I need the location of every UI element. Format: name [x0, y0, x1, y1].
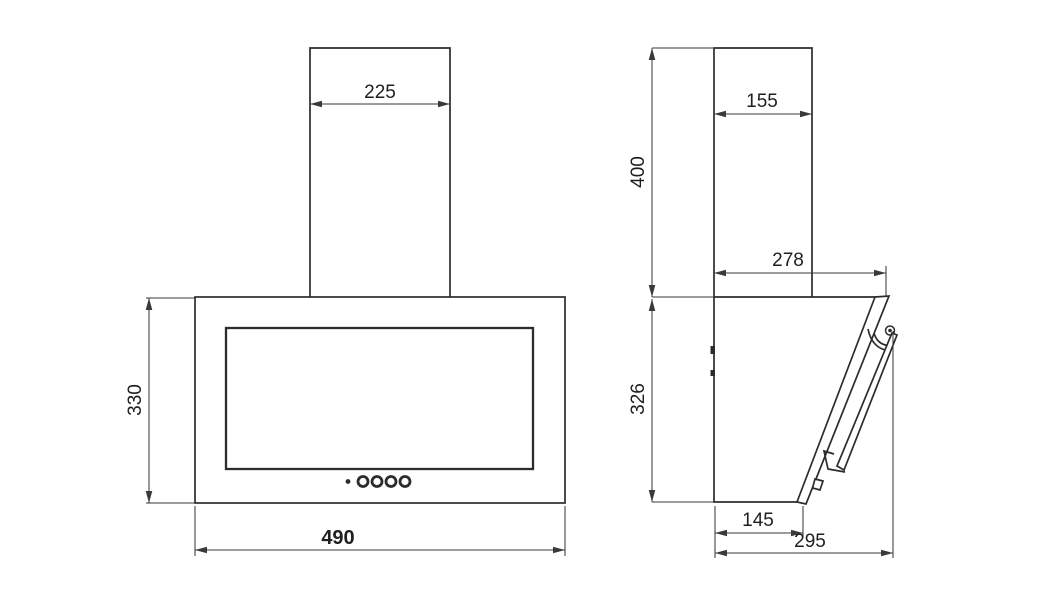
dim-label-295: 295	[794, 531, 826, 552]
front-glass-panel	[226, 328, 533, 469]
dim-label-145: 145	[742, 510, 774, 531]
dim-side-chimney-height: 400	[628, 48, 714, 297]
indicator-led-dot	[346, 479, 351, 484]
hinge-pin-center	[888, 329, 892, 333]
dim-label-330: 330	[125, 384, 146, 416]
panel-clip-tab	[813, 479, 824, 490]
dim-side-bottom-depth: 145	[715, 506, 803, 558]
side-angled-front-panel	[797, 296, 889, 504]
dim-label-326: 326	[628, 383, 649, 415]
dim-label-400: 400	[628, 156, 649, 188]
technical-drawing-cooker-hood: 225 330 490	[0, 0, 1053, 615]
dim-side-body-height: 326	[628, 299, 714, 502]
drawing-canvas: 225 330 490	[0, 0, 1053, 615]
dim-label-490: 490	[321, 527, 354, 549]
control-button-3	[386, 477, 396, 487]
front-control-panel	[346, 477, 410, 487]
dim-label-278: 278	[772, 250, 804, 271]
mount-slot-lower	[711, 370, 716, 376]
mount-slot-upper	[711, 346, 716, 354]
dim-label-155: 155	[746, 91, 778, 112]
front-view: 225 330 490	[125, 48, 565, 556]
dim-front-chimney-width: 225	[310, 82, 450, 104]
control-button-2	[372, 477, 382, 487]
dim-side-upper-depth: 278	[714, 250, 886, 296]
side-body-back-bottom	[714, 297, 797, 502]
dim-front-body-height: 330	[125, 298, 195, 503]
hinge-bracket-inner-arc	[874, 333, 888, 346]
dim-label-225: 225	[364, 82, 396, 103]
control-button-1	[358, 477, 368, 487]
side-view: 155 400 278 326 145	[628, 48, 897, 558]
dim-front-body-width: 490	[195, 506, 565, 556]
dim-side-chimney-depth: 155	[714, 91, 812, 114]
control-button-4	[400, 477, 410, 487]
